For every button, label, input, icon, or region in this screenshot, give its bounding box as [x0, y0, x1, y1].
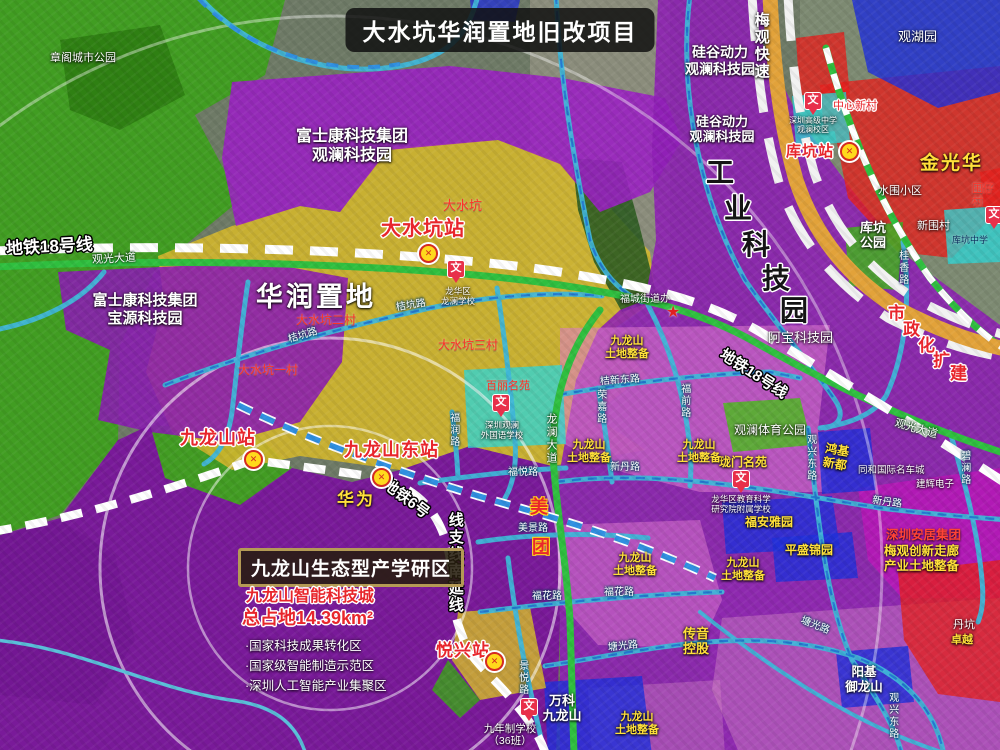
- road-label-fuhua-2: 福花路: [604, 587, 634, 599]
- station-marker-jiulongshan-east[interactable]: ✕: [372, 468, 391, 487]
- zone-label-meituan-char1: 美: [530, 497, 548, 518]
- info-box-bullets: ·国家科技成果转化区 ·国家级智能制造示范区 ·深圳人工智能产业集聚区: [245, 636, 387, 696]
- zone-label-guanhuyuan: 观湖园: [898, 29, 937, 44]
- zone-label-dashuikeng: 大水坑: [443, 198, 482, 213]
- info-box-heading: 九龙山生态型产学研区: [238, 548, 464, 587]
- zone-label-jinguanghua: 金光华: [920, 153, 983, 175]
- road-label-fuqian: 福前路: [678, 383, 690, 427]
- road-label-meijing: 美景路: [518, 523, 548, 535]
- station-label-jiulongshan-east: 九龙山东站: [344, 440, 439, 461]
- road-label-furun: 福润路: [447, 412, 459, 452]
- zone-label-industrial-char4: 技: [762, 262, 790, 295]
- school-caption-longlan: 龙华区 龙澜学校: [432, 286, 484, 306]
- zone-label-pingsheng: 平盛锦园: [785, 543, 833, 557]
- metro-logo-icon: ✕: [425, 249, 433, 258]
- road-label-rongjia: 荣嘉路: [594, 389, 606, 433]
- station-label-yuexing: 悦兴站: [436, 641, 490, 661]
- road-label-guanxing-east-1: 观兴东路: [804, 434, 816, 494]
- meiguan-expressway-label: 梅观快速: [752, 12, 770, 108]
- road-label-bilan: 碧澜路: [958, 450, 970, 494]
- zone-label-hongji: 鸿基 新都: [822, 441, 851, 473]
- school-pin-icon[interactable]: 文: [447, 260, 465, 278]
- pin-glyph: 文: [989, 208, 1000, 220]
- zone-label-zhongxin-xincun: 中心新村: [833, 100, 877, 113]
- zone-label-shuiwei: 水围小区: [878, 185, 922, 198]
- zone-label-shizheng-char5: 建: [950, 364, 967, 384]
- zone-label-abao: 阿宝科技园: [768, 330, 833, 345]
- pin-glyph: 文: [496, 396, 507, 408]
- road-label-fuyue: 福悦路: [508, 467, 538, 479]
- school-pin-icon[interactable]: 文: [804, 92, 822, 110]
- pin-glyph: 文: [451, 262, 462, 274]
- zone-label-foxconn-guanlan: 富士康科技集团 观澜科技园: [282, 128, 422, 166]
- zone-label-foxconn-baoyuan: 富士康科技集团 宝源科技园: [75, 292, 215, 327]
- zone-label-tudi-2: 九龙山 土地整备: [564, 439, 614, 465]
- zone-label-fucheng-office: 福城街道办: [620, 294, 670, 306]
- station-marker-yuexing[interactable]: ✕: [485, 652, 504, 671]
- zone-label-tudi-4: 九龙山 土地整备: [610, 552, 660, 578]
- zone-label-anju-line2: 梅观创新走廊: [884, 544, 959, 559]
- pin-glyph: 文: [808, 94, 819, 106]
- station-label-kukeng: 库坑站: [786, 143, 834, 161]
- zone-label-tudi-3: 九龙山 土地整备: [674, 439, 724, 465]
- zone-label-guigu-south: 硅谷动力 观澜科技园: [672, 114, 772, 145]
- road-label-fuhua-1: 福花路: [532, 591, 562, 603]
- zone-label-industrial-char5: 园: [780, 294, 808, 327]
- zone-label-xinwei: 新围村: [917, 220, 950, 233]
- school-pin-icon[interactable]: 文: [492, 394, 510, 412]
- zone-label-tudi-1: 九龙山 土地整备: [602, 335, 652, 361]
- zone-label-school36: 九年制学校 （36班）: [478, 723, 542, 748]
- zone-label-tudi-5: 九龙山 土地整备: [718, 557, 768, 583]
- station-label-dashuikeng: 大水坑站: [381, 218, 465, 242]
- pin-glyph: 文: [524, 700, 535, 712]
- metro-logo-icon: ✕: [250, 455, 258, 464]
- station-marker-jiulongshan[interactable]: ✕: [244, 450, 263, 469]
- school-caption-guanlan-fls: 深圳观澜 外国语学校: [472, 420, 532, 440]
- metro-logo-icon: ✕: [491, 657, 499, 666]
- zone-label-chuanyin: 传音 控股: [678, 626, 714, 657]
- road-label-xindan-1: 新丹路: [610, 462, 640, 474]
- zone-label-meituan-char2: 团: [532, 537, 550, 558]
- zone-label-yangji: 阳基 御龙山: [840, 665, 888, 695]
- school-pin-icon[interactable]: 文: [520, 698, 538, 716]
- satellite-planning-map[interactable]: 富士康科技集团 观澜科技园 富士康科技集团 宝源科技园 华润置地 大水坑 大水坑…: [0, 0, 1000, 750]
- zone-label-longmen: 珑门名苑: [719, 455, 767, 469]
- zone-label-jianhui: 建辉电子: [916, 479, 954, 490]
- zone-label-industrial-char1: 工: [706, 156, 734, 189]
- info-box-subtitle: 九龙山智能科技城: [246, 588, 374, 607]
- zone-label-industrial-char3: 科: [742, 228, 770, 261]
- zone-label-village3: 大水坑三村: [438, 338, 498, 352]
- zone-label-fuan: 福安雅园: [745, 515, 793, 529]
- info-box-area: 总占地14.39km²: [242, 608, 373, 629]
- zone-label-bailimingyuan: 百丽名苑: [486, 380, 530, 393]
- zone-label-vanke: 万科 九龙山: [538, 693, 586, 724]
- map-title: 大水坑华润置地旧改项目: [346, 8, 655, 52]
- school-pin-icon[interactable]: 文: [985, 206, 1000, 224]
- station-marker-dashuikeng[interactable]: ✕: [419, 244, 438, 263]
- zone-label-zhuoyue: 卓越: [951, 634, 973, 647]
- school-caption-fuyuan: 龙华区教育科学 研究院附属学校: [700, 494, 782, 514]
- zone-label-huawei: 华为: [337, 490, 375, 510]
- zone-label-tudi-6: 九龙山 土地整备: [612, 711, 662, 737]
- zone-label-zhangge-park: 章阁城市公园: [50, 52, 116, 65]
- zone-label-sports-park: 观澜体育公园: [734, 423, 806, 437]
- road-label-longlan-ave: 龙澜大道: [544, 413, 557, 477]
- station-label-jiulongshan: 九龙山站: [180, 428, 256, 449]
- zone-label-village2: 大水坑二村: [296, 313, 356, 327]
- zone-label-village1: 大水坑一村: [238, 363, 298, 377]
- zone-label-tonghe: 同和国际名车城: [858, 465, 925, 476]
- school-pin-icon[interactable]: 文: [732, 470, 750, 488]
- zone-label-kukeng-school: 库坑中学: [952, 235, 988, 246]
- zone-label-industrial-char2: 业: [724, 192, 752, 225]
- road-label-guanguang-west: 观光大道: [92, 252, 137, 267]
- road-label-guixiang: 桂香路: [896, 250, 908, 294]
- zone-label-dankeng: 丹坑: [953, 619, 975, 632]
- station-marker-kukeng[interactable]: ✕: [840, 142, 859, 161]
- zone-label-crland: 华润置地: [256, 282, 376, 314]
- government-star-icon: ★: [666, 302, 680, 322]
- metro-logo-icon: ✕: [846, 147, 854, 156]
- zone-label-anju-line1: 深圳安居集团: [886, 528, 961, 543]
- pin-glyph: 文: [736, 472, 747, 484]
- zone-label-anju-line3: 产业土地整备: [884, 559, 959, 574]
- metro-logo-icon: ✕: [378, 473, 386, 482]
- zone-label-shizheng-char4: 扩: [933, 351, 950, 371]
- road-label-guanxing-east-2: 观兴东路: [886, 692, 898, 750]
- zone-label-kukeng-park: 库坑 公园: [860, 220, 886, 251]
